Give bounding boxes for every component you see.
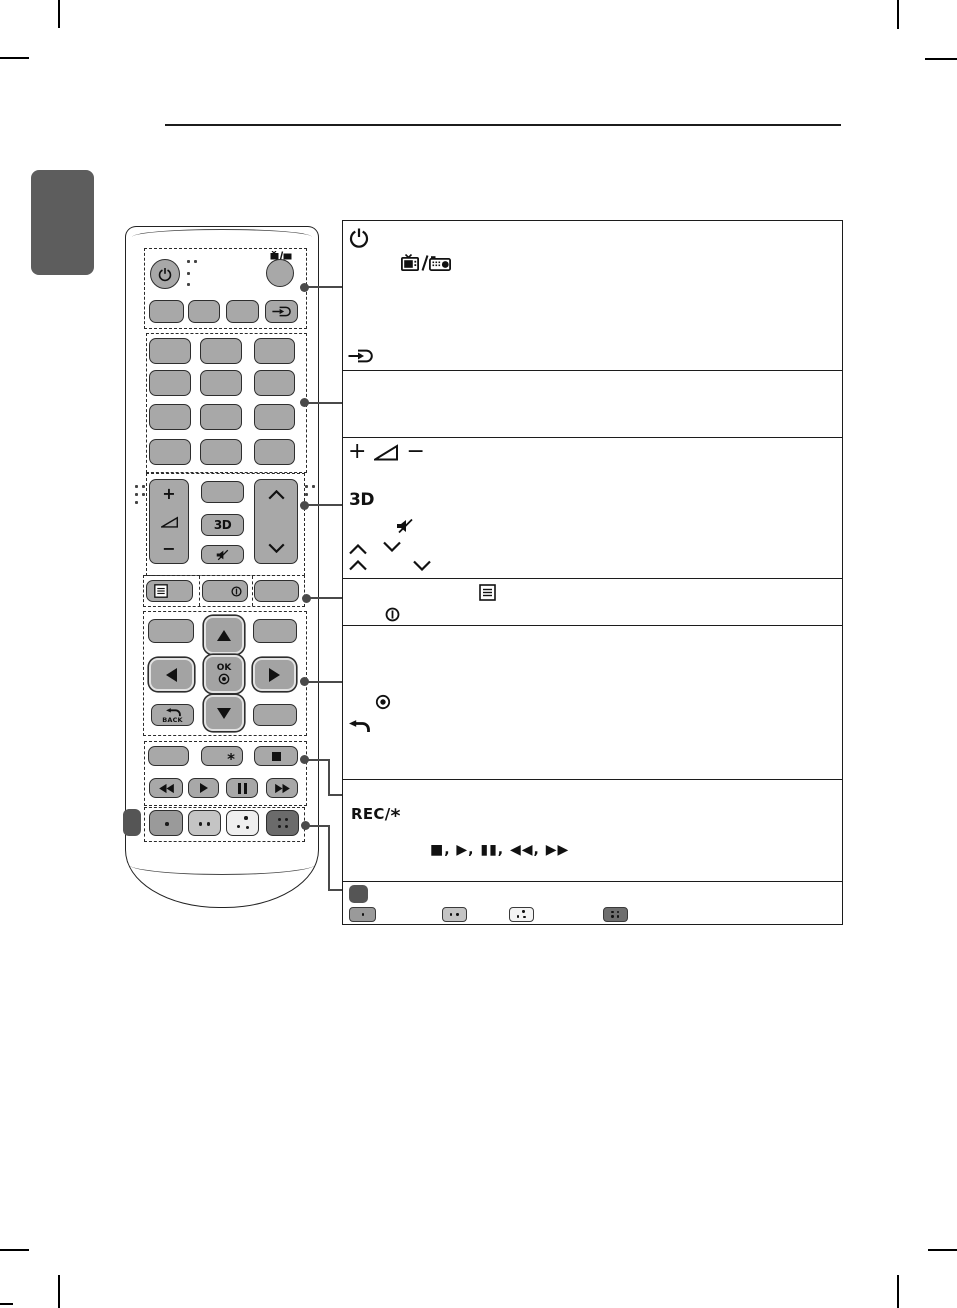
chevron-up-icon [349,544,367,555]
mute-icon [216,549,230,561]
blank-button [253,619,297,643]
ok-button: OK [204,655,244,693]
number-button [149,338,191,364]
side-button-icon [349,885,368,903]
crop-mark [925,58,957,60]
nav-up-button [204,616,244,654]
callout-line [328,825,330,891]
one-dot-button-icon [349,907,376,922]
crop-mark [58,0,60,28]
detail-dot [312,485,315,488]
rec-label: REC/* [351,802,401,824]
crop-mark [897,0,899,29]
tv-radio-icon [401,254,451,272]
back-button: BACK [151,704,194,726]
playback-icons: ■, ▶, ▮▮, ◀◀, ▶▶ [430,842,569,858]
input-icon [348,349,373,363]
power-icon [158,267,172,282]
crop-mark [928,1249,957,1251]
table-row [343,626,842,780]
callout-line [328,889,342,891]
callout-line [306,597,342,599]
number-button [149,439,191,465]
volume-minus-icon: − [162,542,175,556]
number-button [149,370,191,396]
menu-button [146,580,193,602]
two-dot-button-icon [442,907,467,922]
two-dot-button [188,810,221,836]
detail-dot [135,501,138,504]
number-button [254,439,295,465]
table-row [343,882,842,926]
function-button-1 [149,300,184,323]
three-dot-button-icon [509,907,534,922]
down-arrow-icon [216,707,232,720]
detail-dot [135,485,138,488]
nav-down-button [204,695,244,731]
mute-icon [396,518,415,534]
callout-line [328,759,330,796]
detail-dot [187,283,190,286]
detail-dot [142,485,145,488]
blank-button [253,704,297,726]
up-arrow-icon [216,629,232,642]
info-icon [231,586,242,597]
volume-wedge-icon [374,444,398,461]
detail-dot [142,493,145,496]
center-blank-button [201,481,244,503]
description-table: + − 3D [342,220,843,925]
nav-right-button [253,658,296,691]
volume-minus-icon: − [406,442,424,462]
fast-forward-icon [274,783,291,794]
ok-label: OK [217,664,232,673]
callout-line [304,759,330,761]
table-row [343,371,842,438]
number-button [200,439,242,465]
rec-asterisk-icon: * [390,805,400,827]
detail-dot [187,260,190,263]
chapter-tab [31,170,94,275]
number-button [149,404,191,430]
3d-icon: 3D [214,518,231,532]
pause-button [226,778,258,798]
volume-wedge-icon [161,516,178,528]
crop-mark [0,1249,29,1251]
detail-dot [187,272,190,275]
stop-icon [272,752,281,761]
one-dot-button [149,810,183,836]
callout-line [304,286,342,288]
header-rule [165,124,841,126]
tv-radio-button [266,259,294,287]
nav-left-button [149,658,194,691]
number-button [254,370,295,396]
fast-forward-button [266,778,298,798]
detail-dot [194,260,197,263]
table-row [343,579,842,626]
chevron-up-icon [268,490,285,500]
number-button [200,338,242,364]
detail-dot [305,485,308,488]
blank-button [254,580,299,602]
record-button: * [201,746,243,766]
play-button [188,778,219,798]
rewind-button [149,778,183,798]
number-button [200,370,242,396]
group-divider [252,576,253,606]
input-button [265,300,298,323]
crop-mark [897,1275,899,1308]
rewind-icon [158,783,175,794]
remote-top-edge [132,229,312,237]
stop-button [254,746,298,766]
manual-page: + − 3D [0,0,957,1308]
remote-control-illustration: + − 3D [125,226,319,908]
channel-rocker [254,479,298,564]
number-button [254,338,295,364]
volume-rocker: + − [149,479,189,564]
play-icon [199,782,209,794]
number-button [200,404,242,430]
right-arrow-icon [268,667,281,683]
info-button [202,580,248,602]
3d-icon: 3D [349,490,374,510]
chevron-up-icon [349,560,367,571]
callout-line [305,825,330,827]
chevron-down-icon [413,560,431,571]
table-row [343,221,842,371]
crop-mark [0,57,29,59]
three-dot-button [226,810,259,836]
rec-asterisk-icon: * [227,750,235,768]
detail-dot [135,493,138,496]
group-divider [199,576,200,606]
callout-line [304,504,342,506]
detail-dot [305,493,308,496]
power-button [150,259,180,289]
back-label: BACK [162,717,183,724]
four-dot-button-icon [603,907,628,922]
crop-mark [0,1303,13,1305]
power-icon [349,227,369,249]
four-dot-button [266,810,299,836]
number-button [254,404,295,430]
volume-plus-icon: + [348,442,366,462]
table-row: REC/* ■, ▶, ▮▮, ◀◀, ▶▶ [343,780,842,882]
function-button-2 [188,300,220,323]
menu-icon [479,584,496,601]
3d-button: 3D [201,514,244,536]
chevron-down-icon [268,543,285,553]
function-button-3 [226,300,259,323]
crop-mark [58,1275,60,1308]
callout-line [304,402,342,404]
side-button-icon [123,809,141,836]
callout-line [328,794,342,796]
mute-button [201,545,244,564]
left-arrow-icon [165,667,178,683]
input-icon [272,306,291,317]
blank-button [148,746,189,766]
info-icon [385,607,400,622]
chevron-down-icon [383,541,401,552]
volume-plus-icon: + [162,487,175,501]
ok-target-icon [375,694,391,710]
callout-line [304,681,342,683]
blank-button [148,619,194,643]
remote-battery-cover-line [128,864,316,875]
ok-target-icon [218,673,230,685]
table-row: + − 3D [343,438,842,579]
back-arrow-icon [348,718,370,735]
menu-icon [154,584,168,598]
volume-icons: + − [348,442,425,462]
pause-icon [236,779,248,798]
